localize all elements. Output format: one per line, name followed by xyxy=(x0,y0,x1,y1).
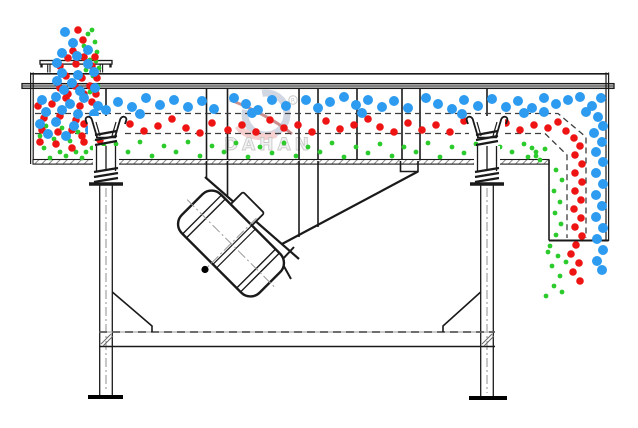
particle-small xyxy=(554,233,559,238)
particle-large xyxy=(101,105,111,115)
particle-large xyxy=(598,245,608,255)
particle-large xyxy=(72,51,82,61)
particle-large xyxy=(241,99,251,109)
particle-small xyxy=(552,284,557,289)
particle-medium xyxy=(577,214,585,222)
particle-small xyxy=(38,134,43,139)
particle-medium xyxy=(562,127,570,135)
particle-large xyxy=(575,92,585,102)
particle-small xyxy=(80,156,85,161)
particle-large xyxy=(389,96,399,106)
particle-medium xyxy=(572,241,580,249)
particle-medium xyxy=(79,36,87,44)
particle-small xyxy=(559,222,564,227)
particle-large xyxy=(325,97,335,107)
particle-medium xyxy=(266,116,274,124)
particle-medium xyxy=(182,124,190,132)
particle-large xyxy=(35,119,45,129)
particle-medium xyxy=(569,268,577,276)
particle-small xyxy=(438,155,443,160)
particle-large xyxy=(113,97,123,107)
gusset-left xyxy=(112,292,152,332)
particle-small xyxy=(510,150,515,155)
particle-large xyxy=(67,78,77,88)
particle-small xyxy=(546,250,551,255)
particle-large xyxy=(83,45,93,55)
particle-large xyxy=(591,212,601,222)
particle-small xyxy=(162,144,167,149)
particle-small xyxy=(426,141,431,146)
particle-medium xyxy=(432,121,440,129)
particle-small xyxy=(186,140,191,145)
particle-large xyxy=(539,93,549,103)
particle-small xyxy=(522,142,527,147)
particle-large xyxy=(563,95,573,105)
particle-large xyxy=(281,101,291,111)
particle-large xyxy=(593,112,603,122)
particle-small xyxy=(342,155,347,160)
particle-large xyxy=(37,95,47,105)
particle-large xyxy=(597,137,607,147)
particle-small xyxy=(553,211,558,216)
particle-medium xyxy=(72,60,80,68)
particle-medium xyxy=(350,121,358,129)
particle-small xyxy=(150,154,155,159)
particle-medium xyxy=(577,196,585,204)
particle-small xyxy=(270,151,275,156)
particle-large xyxy=(592,256,602,266)
particle-medium xyxy=(567,250,575,258)
particle-small xyxy=(560,178,565,183)
particle-large xyxy=(513,96,523,106)
particle-medium xyxy=(322,117,330,125)
particle-small xyxy=(84,150,89,155)
particle-large xyxy=(83,59,93,69)
particle-large xyxy=(351,100,361,110)
particle-large xyxy=(90,83,100,93)
particle-medium xyxy=(575,259,583,267)
particle-small xyxy=(90,28,95,33)
particle-medium xyxy=(571,223,579,231)
particle-small xyxy=(560,290,565,295)
particle-large xyxy=(52,58,62,68)
particle-small xyxy=(234,141,239,146)
particle-large xyxy=(591,147,601,157)
particle-medium xyxy=(554,118,562,126)
particle-small xyxy=(530,146,535,151)
particle-small xyxy=(526,155,531,160)
particle-medium xyxy=(578,232,586,240)
particle-large xyxy=(457,109,467,119)
particle-small xyxy=(462,151,467,156)
particle-medium xyxy=(571,187,579,195)
particle-medium xyxy=(126,120,134,128)
particle-large xyxy=(539,107,549,117)
particle-large xyxy=(339,92,349,102)
particle-large xyxy=(377,102,387,112)
particle-large xyxy=(597,265,607,275)
base-beam xyxy=(99,332,495,347)
particle-small xyxy=(548,244,553,249)
particle-small xyxy=(294,154,299,159)
particle-medium xyxy=(308,128,316,136)
particle-small xyxy=(93,40,98,45)
particle-large xyxy=(57,48,67,58)
particle-medium xyxy=(238,121,246,129)
particle-large xyxy=(591,168,601,178)
particle-small xyxy=(390,154,395,159)
particle-large xyxy=(141,93,151,103)
particle-small xyxy=(64,154,69,159)
particle-small xyxy=(86,32,91,37)
particle-large xyxy=(581,107,591,117)
particle-medium xyxy=(571,169,579,177)
particle-large xyxy=(591,190,601,200)
particle-large xyxy=(73,109,83,119)
particle-large xyxy=(247,108,257,118)
foot-pad-left xyxy=(88,395,123,399)
particle-large xyxy=(473,101,483,111)
motor-cable-gland xyxy=(201,266,208,273)
particle-large xyxy=(68,38,78,48)
particle-medium xyxy=(576,277,584,285)
gusset-right xyxy=(443,292,481,332)
particle-small xyxy=(330,141,335,146)
particle-large xyxy=(65,99,75,109)
particle-medium xyxy=(91,53,99,61)
particle-medium xyxy=(208,119,216,127)
particle-large xyxy=(61,131,71,141)
particle-small xyxy=(552,189,557,194)
particle-medium xyxy=(516,126,524,134)
particle-large xyxy=(589,128,599,138)
particle-large xyxy=(598,179,608,189)
particle-medium xyxy=(578,160,586,168)
particle-large xyxy=(403,103,413,113)
particle-large xyxy=(51,117,61,127)
particle-small xyxy=(543,147,548,152)
particle-medium xyxy=(570,205,578,213)
particle-large xyxy=(60,27,70,37)
particle-medium xyxy=(446,128,454,136)
particle-large xyxy=(52,76,62,86)
particle-medium xyxy=(404,119,412,127)
particle-medium xyxy=(52,140,60,148)
particle-medium xyxy=(570,134,578,142)
particle-large xyxy=(59,85,69,95)
spring-assembly-right xyxy=(467,116,508,184)
particle-large xyxy=(267,95,277,105)
particle-small xyxy=(58,150,63,155)
particle-large xyxy=(357,108,367,118)
particle-large xyxy=(519,108,529,118)
particle-large xyxy=(209,104,219,114)
particle-large xyxy=(597,201,607,211)
particle-medium xyxy=(390,128,398,136)
particle-small xyxy=(306,145,311,150)
particle-large xyxy=(127,102,137,112)
particle-large xyxy=(229,93,239,103)
particle-small xyxy=(354,145,359,150)
particle-large xyxy=(596,93,606,103)
particle-small xyxy=(366,151,371,156)
diagram-svg: R DAHAN xyxy=(0,0,638,428)
particle-large xyxy=(89,67,99,77)
particle-small xyxy=(282,141,287,146)
particle-medium xyxy=(530,121,538,129)
particle-small xyxy=(378,142,383,147)
particle-small xyxy=(450,145,455,150)
support-leg-right xyxy=(469,186,507,401)
particle-small xyxy=(318,150,323,155)
particle-medium xyxy=(576,142,584,150)
particle-medium xyxy=(252,128,260,136)
particle-large xyxy=(69,121,79,131)
particle-large xyxy=(551,99,561,109)
particle-small xyxy=(544,294,549,299)
particle-small xyxy=(222,150,227,155)
particle-large xyxy=(598,157,608,167)
particle-large xyxy=(459,95,469,105)
particle-large xyxy=(501,102,511,112)
particle-small xyxy=(564,260,569,265)
particle-large xyxy=(363,95,373,105)
particle-large xyxy=(592,234,602,244)
particle-medium xyxy=(280,124,288,132)
particle-medium xyxy=(578,178,586,186)
particle-large xyxy=(169,95,179,105)
particle-large xyxy=(79,93,89,103)
particle-small xyxy=(138,140,143,145)
particle-medium xyxy=(294,121,302,129)
beam-joint-hatch-right xyxy=(482,334,494,346)
particle-medium xyxy=(154,122,162,130)
particle-large xyxy=(43,129,53,139)
particle-medium xyxy=(224,126,232,134)
particle-large xyxy=(155,100,165,110)
particle-large xyxy=(598,121,608,131)
particle-large xyxy=(57,105,67,115)
particle-medium xyxy=(140,127,148,135)
particle-small xyxy=(558,200,563,205)
particle-medium xyxy=(196,129,204,137)
particle-medium xyxy=(68,144,76,152)
particle-small xyxy=(402,145,407,150)
particle-small xyxy=(414,150,419,155)
particle-medium xyxy=(74,26,82,34)
particle-large xyxy=(135,109,145,119)
beam-joint-hatch-left xyxy=(101,334,113,346)
particle-medium xyxy=(80,138,88,146)
particle-medium xyxy=(36,138,44,146)
foot-pad-right xyxy=(469,396,507,400)
particle-large xyxy=(447,104,457,114)
spring-mask xyxy=(88,116,124,140)
particle-small xyxy=(210,144,215,149)
particle-medium xyxy=(418,126,426,134)
particle-small xyxy=(538,158,543,163)
particle-small xyxy=(550,264,555,269)
particle-small xyxy=(174,150,179,155)
particle-small xyxy=(556,254,561,259)
particle-small xyxy=(534,150,539,155)
particle-large xyxy=(197,96,207,106)
particle-medium xyxy=(54,128,62,136)
particle-large xyxy=(183,102,193,112)
particle-large xyxy=(487,94,497,104)
particle-large xyxy=(313,103,323,113)
vibrating-screen-diagram: R DAHAN xyxy=(0,0,638,428)
particle-medium xyxy=(544,124,552,132)
particle-large xyxy=(598,223,608,233)
particle-medium xyxy=(571,151,579,159)
particle-large xyxy=(433,99,443,109)
drive-and-support-structure xyxy=(86,116,508,400)
particle-medium xyxy=(76,102,84,110)
particle-large xyxy=(73,70,83,80)
particle-small xyxy=(198,154,203,159)
particle-small xyxy=(42,146,47,151)
registered-mark: R xyxy=(291,97,295,104)
particle-small xyxy=(126,150,131,155)
particle-large xyxy=(421,93,431,103)
particle-small xyxy=(258,145,263,150)
particle-large xyxy=(301,95,311,105)
particle-small xyxy=(554,168,559,173)
particle-medium xyxy=(168,115,176,123)
particle-medium xyxy=(336,125,344,133)
particle-large xyxy=(51,92,61,102)
particle-small xyxy=(48,156,53,161)
spring-mask xyxy=(469,116,505,140)
particle-large xyxy=(41,107,51,117)
particle-medium xyxy=(376,123,384,131)
motor-strut xyxy=(282,172,418,245)
support-leg-left xyxy=(88,186,123,400)
particle-small xyxy=(246,155,251,160)
particle-small xyxy=(558,274,563,279)
